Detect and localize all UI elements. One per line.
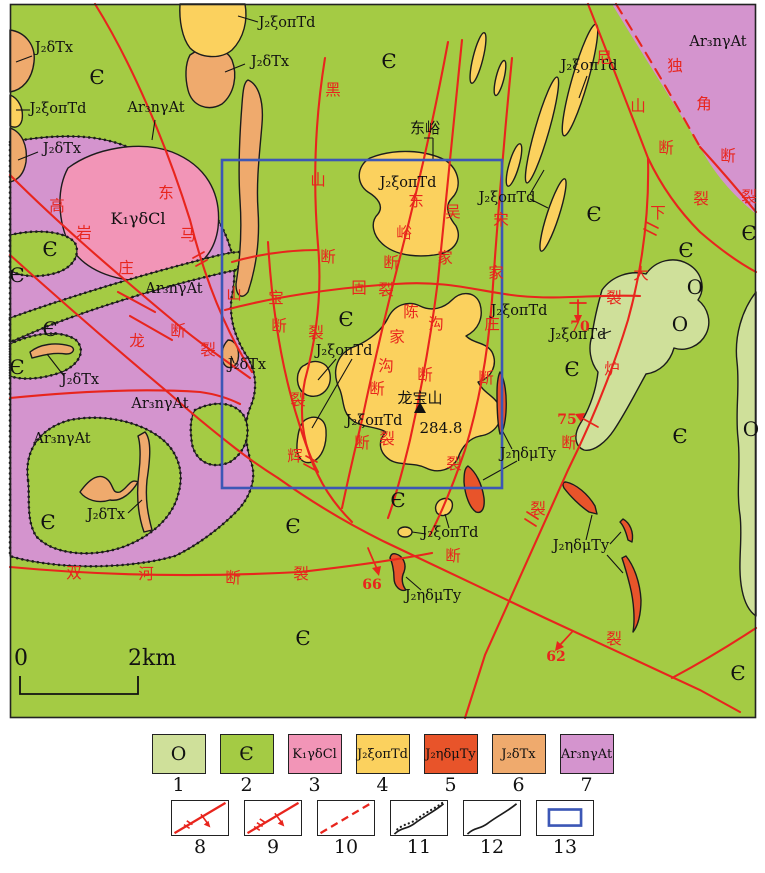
unit-label: J₂ξoπTd — [420, 525, 479, 541]
fault-name-char: 裂 — [741, 188, 757, 206]
unit-label: Є — [295, 626, 310, 650]
fault-name-char: 龙 — [129, 332, 145, 350]
legend-item-j2-xi: J₂ξoπTd 4 — [356, 734, 410, 796]
unit-label: O — [743, 417, 759, 441]
fault-name-char: 河 — [138, 565, 154, 583]
legend-item-study-area: 13 — [536, 800, 594, 858]
unit-label: Є — [730, 661, 745, 685]
unit-label: J₂ξoπTd — [257, 15, 316, 31]
fault-name-char: 家 — [488, 264, 504, 282]
fault-dip-symbol — [171, 800, 229, 836]
fault-name-char: 断 — [170, 322, 186, 340]
fault-name-char: 裂 — [530, 500, 546, 518]
fault-name-char: 断 — [271, 317, 287, 335]
unit-label: 龙宝山 — [397, 389, 442, 407]
legend-item-fault-dip: 8 — [171, 800, 229, 858]
fault-name-char: 裂 — [693, 190, 709, 208]
dip-value: 75 — [557, 412, 576, 428]
fault-name-char: 家 — [437, 249, 453, 267]
legend-swatch-j2xi: J₂ξoπTd — [356, 734, 410, 774]
legend-row-units: O 1 Є 2 K₁γδCl 3 J₂ξoπTd 4 J₂ηδμTy 5 J₂δ… — [0, 734, 765, 796]
fault-name-char: 庄 — [118, 259, 134, 277]
fault-name-char: 裂 — [379, 430, 395, 448]
geologic-map-figure: 0 2km J₂δTxЄJ₂ξoπTdJ₂δTxAr₃nγAtK₁γδClJ₂ξ… — [0, 0, 765, 873]
fault-name-char: 大 — [633, 265, 649, 283]
dip-value: 66 — [362, 577, 381, 593]
legend-label: O — [171, 743, 187, 765]
legend-swatch-cambrian: Є — [220, 734, 274, 774]
legend-swatch-k1: K₁γδCl — [288, 734, 342, 774]
fault-name-char: 断 — [445, 547, 461, 565]
fault-name-char: 宋 — [493, 211, 509, 229]
legend-swatch-j2delta: J₂δTx — [492, 734, 546, 774]
fault-name-char: 断 — [225, 569, 241, 587]
unit-label: J₂δTx — [33, 40, 73, 56]
fault-name-char: 山 — [630, 97, 646, 115]
legend-number: 3 — [308, 775, 320, 796]
legend-number: 12 — [480, 837, 504, 858]
scale-zero: 0 — [14, 646, 28, 671]
fault-name-char: 独 — [667, 57, 683, 75]
unit-label: Ar₃nγAt — [688, 34, 746, 50]
study-area-symbol — [536, 800, 594, 836]
legend-number: 9 — [267, 837, 279, 858]
legend-item-j2-eta: J₂ηδμTy 5 — [424, 734, 478, 796]
fault-name-char: 下 — [650, 204, 666, 222]
scale-2km: 2km — [128, 646, 176, 671]
unit-label: J₂ξoπTd — [378, 175, 437, 191]
unit-label: J₂δTx — [41, 141, 81, 157]
fault-name-char: 裂 — [200, 341, 216, 359]
fault-name-char: 裂 — [293, 565, 309, 583]
fault-name-char: 断 — [354, 434, 370, 452]
legend-item-j2-delta: J₂δTx 6 — [492, 734, 546, 796]
fault-name-char: 沟 — [378, 357, 394, 375]
unit-label: J₂ξoπTd — [477, 190, 536, 206]
unit-label: Є — [9, 355, 24, 379]
unit-label: Ar₃nγAt — [130, 396, 188, 412]
legend-label: J₂ηδμTy — [425, 747, 476, 762]
fault-name-char: 黑 — [325, 81, 341, 99]
fault-name-char: 东 — [158, 184, 174, 202]
unit-label: Є — [586, 202, 601, 226]
legend-number: 5 — [444, 775, 456, 796]
unit-label: 东峪 — [410, 119, 440, 137]
legend-item-unconformity: 11 — [390, 800, 448, 858]
fault-name-char: 裂 — [378, 281, 394, 299]
unit-label: J₂ξoπTd — [344, 413, 403, 429]
legend-row-symbols: 8 9 10 11 — [0, 800, 765, 858]
fault-name-char: 家 — [389, 328, 405, 346]
fault-name-char: 山 — [310, 171, 326, 189]
unit-label: Є — [89, 65, 104, 89]
fault-name-char: 辉 — [287, 447, 303, 465]
unit-label: Є — [390, 488, 405, 512]
legend-swatch-j2eta: J₂ηδμTy — [424, 734, 478, 774]
fault-name-char: 断 — [369, 380, 385, 398]
legend-label: Є — [239, 743, 254, 765]
fault-name-char: 峪 — [396, 224, 412, 242]
legend-number: 10 — [334, 837, 358, 858]
fault-name-char: 裂 — [308, 324, 324, 342]
legend-number: 11 — [407, 837, 431, 858]
fault-name-char: 裂 — [606, 289, 622, 307]
fault-name-char: 裂 — [606, 630, 622, 648]
fault-name-char: 断 — [417, 366, 433, 384]
fault-name-char: 炉 — [604, 360, 620, 378]
unit-label: Є — [42, 317, 57, 341]
unit-label: J₂δTx — [85, 507, 125, 523]
unit-label: Ar₃nγAt — [126, 100, 184, 116]
legend-number: 8 — [194, 837, 206, 858]
dip-value: 62 — [546, 649, 565, 665]
legend-number: 13 — [553, 837, 577, 858]
legend-label: J₂δTx — [501, 747, 535, 762]
unit-label: J₂ηδμTy — [403, 588, 462, 604]
unit-label: Є — [564, 357, 579, 381]
legend-item-fault-ticks: 9 — [244, 800, 302, 858]
legend-number: 2 — [240, 775, 252, 796]
fault-name-char: 裂 — [446, 455, 462, 473]
unit-label: Ar₃nγAt — [32, 431, 90, 447]
fault-name-char: 断 — [320, 248, 336, 266]
fault-name-char: 宝 — [268, 289, 284, 307]
inferred-fault-symbol — [317, 800, 375, 836]
fault-name-char: 固 — [351, 279, 367, 297]
unit-label: J₂ηδμTy — [551, 538, 610, 554]
unit-label: Є — [381, 49, 396, 73]
unit-label: K₁γδCl — [111, 209, 166, 228]
unconformity-symbol — [390, 800, 448, 836]
unit-label: Є — [678, 238, 693, 262]
fault-ticks-symbol — [244, 800, 302, 836]
legend-item-k1-granite: K₁γδCl 3 — [288, 734, 342, 796]
fault-name-char: 角 — [696, 95, 712, 113]
unit-label: Є — [42, 237, 57, 261]
unit-label: Ar₃nγAt — [144, 281, 202, 297]
fault-name-char: 尼 — [596, 49, 612, 67]
unit-label: J₂ηδμTy — [498, 446, 557, 462]
unit-label: J₂ξoπTd — [314, 343, 373, 359]
legend-label: Ar₃nγAt — [561, 747, 612, 762]
fault-name-char: 断 — [478, 369, 494, 387]
legend-swatch-archean: Ar₃nγAt — [560, 734, 614, 774]
legend-label: K₁γδCl — [292, 747, 337, 762]
unit-label: Є — [40, 510, 55, 534]
fault-name-char: 断 — [658, 139, 674, 157]
fault-name-char: 断 — [720, 147, 736, 165]
unit-label: J₂ξoπTd — [28, 101, 87, 117]
geologic-map: 0 2km J₂δTxЄJ₂ξoπTdJ₂δTxAr₃nγAtK₁γδClJ₂ξ… — [0, 0, 765, 726]
legend-item-cambrian: Є 2 — [220, 734, 274, 796]
legend-number: 4 — [376, 775, 388, 796]
legend-number: 6 — [512, 775, 524, 796]
fault-name-char: 岩 — [76, 224, 92, 242]
legend-label: J₂ξoπTd — [357, 747, 408, 762]
legend-swatch-ordovician: O — [152, 734, 206, 774]
legend-item-archean: Ar₃nγAt 7 — [560, 734, 614, 796]
legend-number: 1 — [172, 775, 184, 796]
fault-name-char: 陈 — [403, 303, 419, 321]
fault-name-char: 断 — [561, 434, 577, 452]
unit-label: J₂δTx — [249, 54, 289, 70]
dip-value: 70 — [570, 319, 590, 335]
unit-label: J₂δTx — [59, 372, 99, 388]
boundary-symbol — [463, 800, 521, 836]
fault-name-char: 双 — [66, 564, 82, 582]
unit-label: J₂δTx — [226, 357, 266, 373]
legend: O 1 Є 2 K₁γδCl 3 J₂ξoπTd 4 J₂ηδμTy 5 J₂δ… — [0, 726, 765, 858]
unit-label: Є — [9, 263, 24, 287]
unit-label: Є — [741, 221, 756, 245]
unit-label: Є — [672, 424, 687, 448]
unit-label: 284.8 — [420, 419, 463, 437]
legend-number: 7 — [580, 775, 592, 796]
fault-name-char: 断 — [383, 254, 399, 272]
legend-item-boundary: 12 — [463, 800, 521, 858]
unit-label: Є — [285, 514, 300, 538]
fault-name-char: 庄 — [484, 315, 500, 333]
unit-label: O — [687, 275, 703, 299]
fault-name-char: 马 — [180, 226, 196, 244]
fault-name-char: 东 — [408, 192, 424, 210]
fault-name-char: 山 — [226, 285, 242, 303]
legend-item-ordovician: O 1 — [152, 734, 206, 796]
fault-name-char: 裂 — [290, 391, 306, 409]
fault-name-char: 高 — [49, 197, 65, 215]
fault-name-char: 吴 — [445, 203, 461, 221]
unit-label: Є — [338, 307, 353, 331]
unit-label: O — [672, 312, 688, 336]
fault-name-char: 沟 — [428, 315, 444, 333]
legend-item-inferred-fault: 10 — [317, 800, 375, 858]
